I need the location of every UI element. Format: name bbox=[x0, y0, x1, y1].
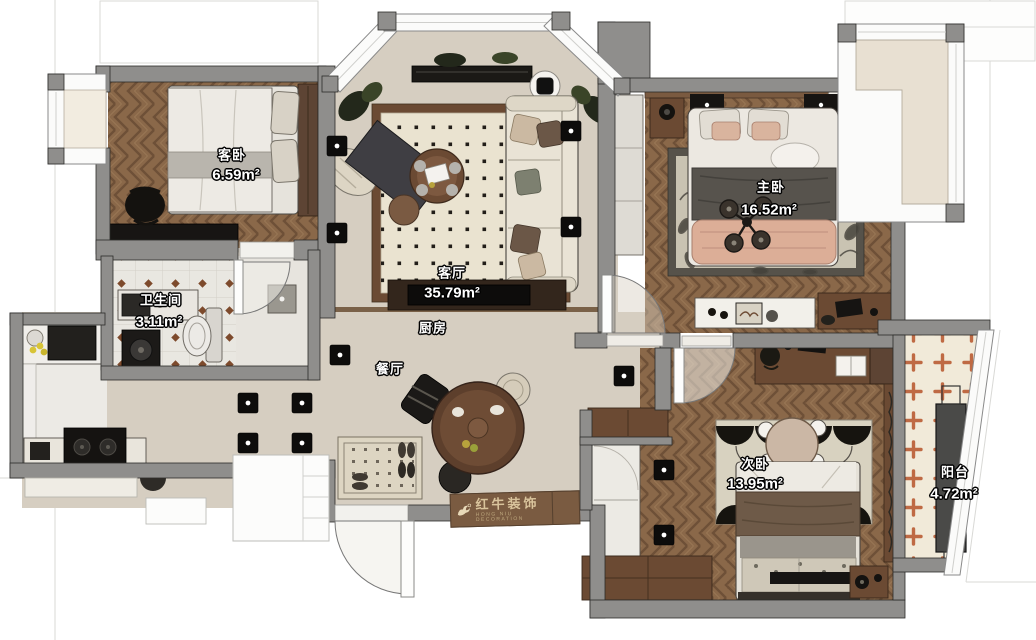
entrance-door bbox=[335, 505, 414, 597]
label-master-bedroom: 主卧 bbox=[757, 177, 785, 196]
watermark-tagline: HONG NIU DECORATION bbox=[476, 511, 553, 523]
second-speaker bbox=[850, 566, 888, 598]
area-living-room: 35.79m² bbox=[424, 285, 480, 302]
guest-wardrobe bbox=[298, 84, 318, 216]
window-console bbox=[412, 66, 532, 82]
watermark-texts: 红牛装饰 HONG NIU DECORATION bbox=[475, 496, 552, 523]
label-balcony: 阳台 bbox=[941, 462, 969, 481]
entry-shoe-mat bbox=[338, 437, 422, 499]
watermark-main: 红牛装饰 HONG NIU DECORATION bbox=[451, 496, 553, 524]
kitchen-side-shelf bbox=[22, 364, 36, 440]
kitchen-counter-top bbox=[22, 322, 106, 364]
label-bathroom: 卫生间 bbox=[140, 290, 182, 309]
master-tv-console bbox=[695, 298, 815, 328]
label-dining-room: 餐厅 bbox=[376, 359, 404, 378]
master-bay-window bbox=[838, 24, 964, 222]
area-guest-bedroom: 6.59m² bbox=[212, 167, 260, 184]
area-second-bedroom: 13.95m² bbox=[727, 476, 783, 493]
master-nightstand-left bbox=[650, 98, 684, 138]
label-guest-bedroom: 客卧 bbox=[218, 145, 246, 164]
area-balcony: 4.72m² bbox=[930, 486, 978, 503]
label-second-bedroom: 次卧 bbox=[741, 454, 769, 473]
area-master-bedroom: 16.52m² bbox=[741, 202, 797, 219]
label-kitchen: 厨房 bbox=[419, 318, 447, 337]
brand-watermark: 红牛装饰 HONG NIU DECORATION bbox=[450, 490, 581, 527]
label-living-room: 客厅 bbox=[438, 263, 466, 282]
guest-bay-window bbox=[48, 74, 106, 164]
coffee-table bbox=[410, 149, 464, 203]
washing-machine bbox=[122, 330, 160, 370]
floorplan-canvas: 客卧 6.59m² 客厅 35.79m² 厨房 卫生间 3.11m² 餐厅 主卧… bbox=[0, 0, 1036, 640]
bull-icon bbox=[456, 502, 472, 518]
area-bathroom: 3.11m² bbox=[136, 314, 183, 331]
watermark-brand: 红牛装饰 bbox=[475, 496, 552, 511]
watermark-end-panel bbox=[552, 491, 580, 524]
